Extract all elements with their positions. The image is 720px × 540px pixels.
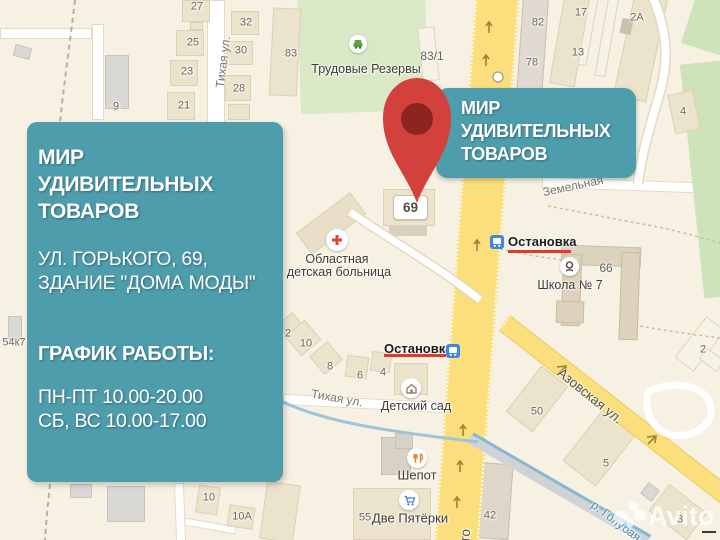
schedule-hours: ПН-ПТ 10.00-20.00 СБ, ВС 10.00-17.00 [38,385,206,433]
schedule-heading: ГРАФИК РАБОТЫ: [38,343,214,366]
store-title-line: МИР [38,144,213,171]
building-number-label: 30 [235,46,247,57]
building-number-label: 4 [380,368,386,379]
street-label: Тихая ул. [214,35,232,88]
cart-icon [399,490,419,510]
poi-label: Школа № 7 [537,279,602,292]
avito-watermark: Avito [612,498,715,534]
building-number-label: 50 [531,407,543,418]
bus-stop-underline [384,354,446,357]
scale-bar [702,531,716,533]
street-label: Горького [455,529,472,540]
school-icon [560,257,579,276]
building-number-label: 2А [630,13,643,24]
store-callout: МИР УДИВИТЕЛЬНЫХ ТОВАРОВ [436,88,636,178]
store-address-line: УЛ. ГОРЬКОГО, 69, [38,247,255,271]
street-label: Азовская ул. [555,366,625,426]
building-number-label: 66 [599,262,612,274]
map-screenshot: 2725232132302898383/1827817132А466210864… [0,0,720,540]
poi-label: Две Пятёрки [372,512,448,525]
map-pin [378,72,458,208]
building-number-label: 83 [285,49,297,60]
callout-title-line: МИР [461,97,500,120]
building-number-label: 83/1 [420,50,443,62]
building-number-label: 27 [191,2,203,13]
bus-stop-icon [446,344,460,358]
avito-logo-icon [612,498,648,534]
store-title-line: УДИВИТЕЛЬНЫХ [38,171,213,198]
building-number-label: 8 [327,362,333,373]
building-number-label: 5 [603,459,609,470]
hospital-icon [326,229,348,251]
store-address-line: ЗДАНИЕ "ДОМА МОДЫ" [38,271,255,295]
sport-club-icon [349,35,367,53]
store-address: УЛ. ГОРЬКОГО, 69, ЗДАНИЕ "ДОМА МОДЫ" [38,247,255,295]
building-number-label: 82 [532,18,544,29]
building-number-label: 55 [359,513,371,524]
store-title: МИР УДИВИТЕЛЬНЫХ ТОВАРОВ [38,144,213,225]
callout-title-line: ТОВАРОВ [461,143,547,166]
building-number-label: 10 [203,493,215,504]
building-number-label: 28 [233,84,245,95]
street-label: Тихая ул. [310,388,363,409]
building-number-label: 2 [285,329,291,340]
building-number-label: 10А [232,512,252,523]
building-number-label: 6 [357,371,363,382]
store-title-line: ТОВАРОВ [38,198,213,225]
poi-label: Шепот [397,469,436,482]
poi-label: детская больница [287,266,391,279]
pin-inner-circle [401,103,433,135]
bus-stop-icon [490,235,504,249]
building-number-label: 32 [240,18,252,29]
bus-stop-underline [508,250,571,253]
poi-label: Детский сад [381,400,451,413]
bus-stop-label: Остановка [508,234,576,249]
building-number-label: 78 [526,58,538,69]
callout-title-line: УДИВИТЕЛЬНЫХ [461,120,611,143]
building-number-label: 42 [484,511,496,522]
building-number-label: 4 [680,107,686,118]
building-number-label: 54к7 [2,338,25,349]
schedule-line: СБ, ВС 10.00-17.00 [38,409,206,433]
kindergarten-icon [401,378,421,398]
avito-watermark-text: Avito [648,501,715,532]
building-number-label: 10 [300,339,312,350]
schedule-line: ПН-ПТ 10.00-20.00 [38,385,206,409]
building-number-label: 25 [187,38,199,49]
restaurant-icon [407,448,427,468]
building-number-label: 9 [113,102,119,113]
building-number-label: 17 [575,8,587,19]
building-number-label: 21 [178,101,190,112]
building-number-label: 13 [572,48,584,59]
poi-label: Областная [305,253,368,266]
store-info-panel: МИР УДИВИТЕЛЬНЫХ ТОВАРОВ УЛ. ГОРЬКОГО, 6… [27,122,283,482]
building-number-label: 2 [700,345,706,356]
building-number-label: 23 [181,67,193,78]
